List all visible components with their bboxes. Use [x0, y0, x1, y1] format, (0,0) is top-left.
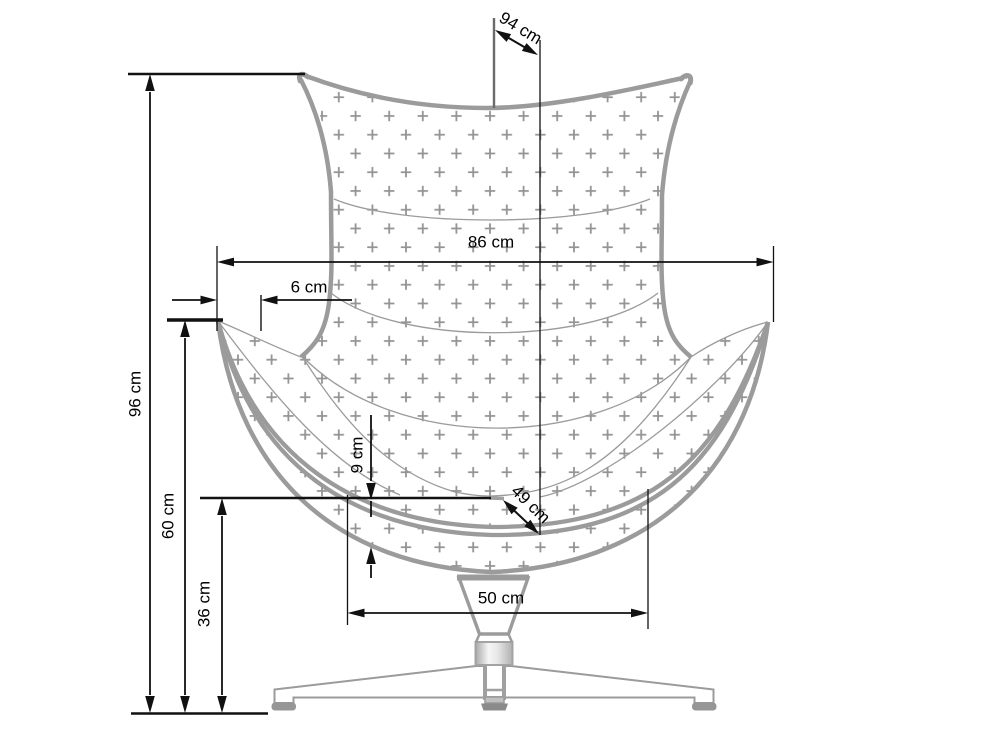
svg-text:86 cm: 86 cm — [468, 232, 514, 251]
svg-text:96 cm: 96 cm — [125, 371, 144, 417]
svg-text:36 cm: 36 cm — [194, 581, 213, 627]
svg-text:6 cm: 6 cm — [291, 277, 328, 296]
svg-text:60 cm: 60 cm — [158, 493, 177, 539]
svg-text:9 cm: 9 cm — [347, 437, 366, 474]
svg-text:50 cm: 50 cm — [478, 588, 524, 607]
